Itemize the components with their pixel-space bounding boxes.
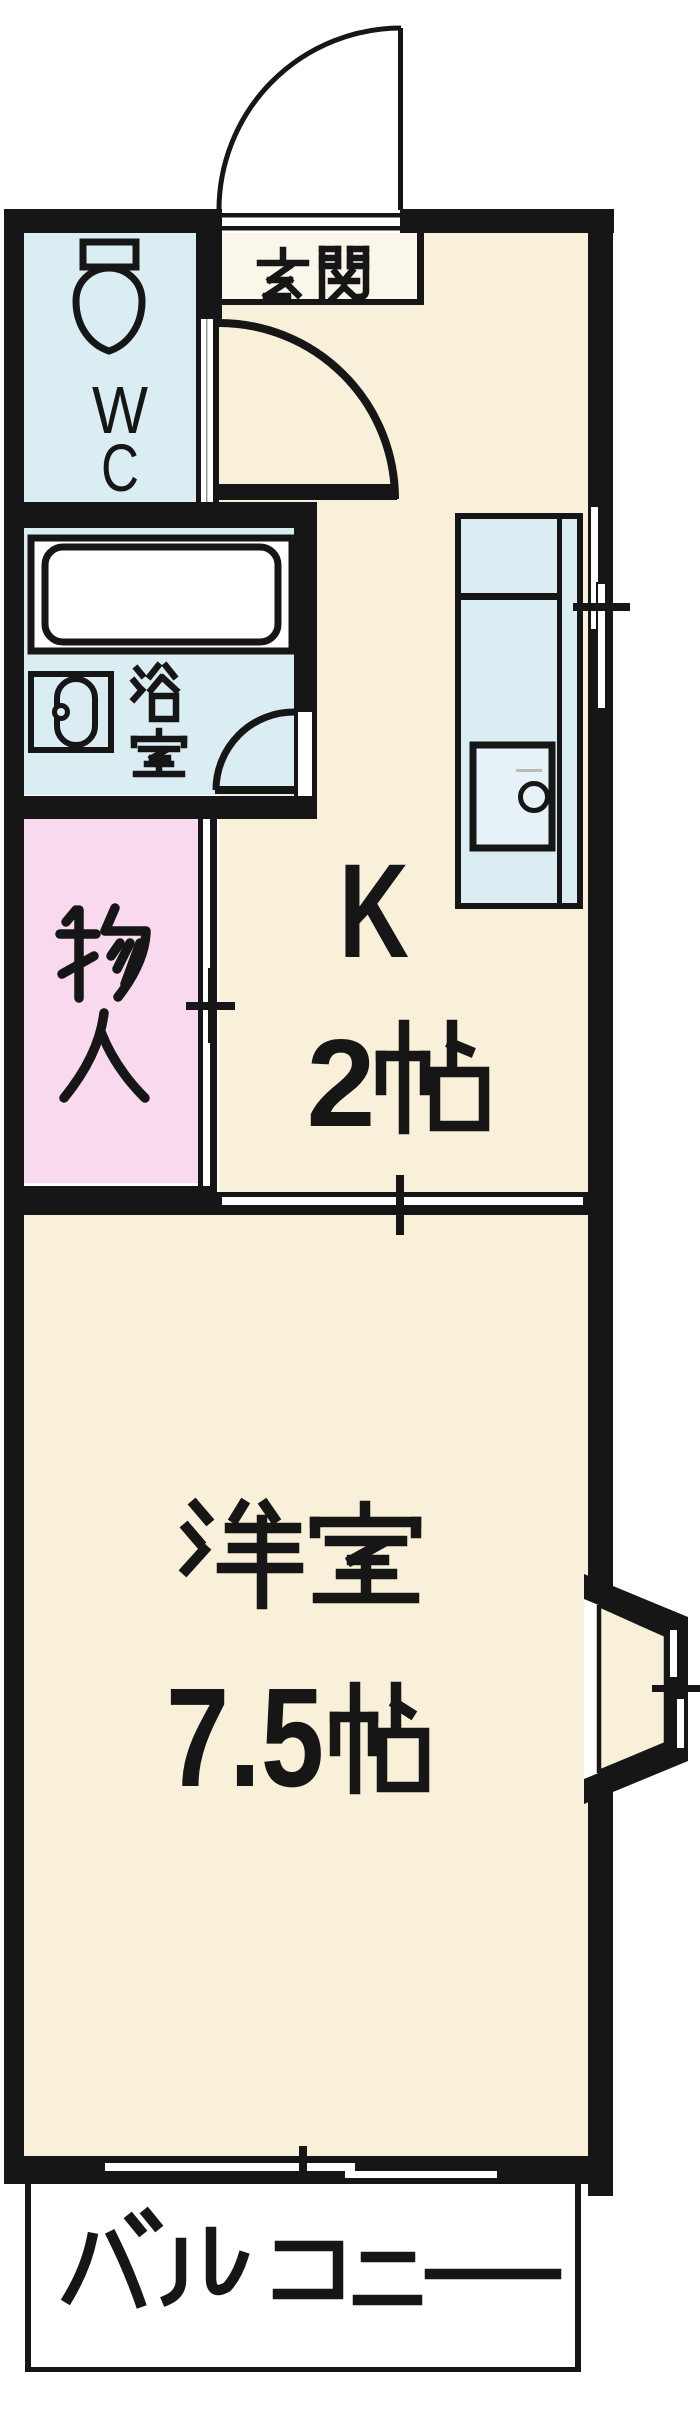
svg-text:C: C [101,431,139,506]
svg-text:K: K [339,837,409,986]
svg-text:2: 2 [307,1015,376,1153]
svg-text:7.5: 7.5 [166,1658,324,1816]
